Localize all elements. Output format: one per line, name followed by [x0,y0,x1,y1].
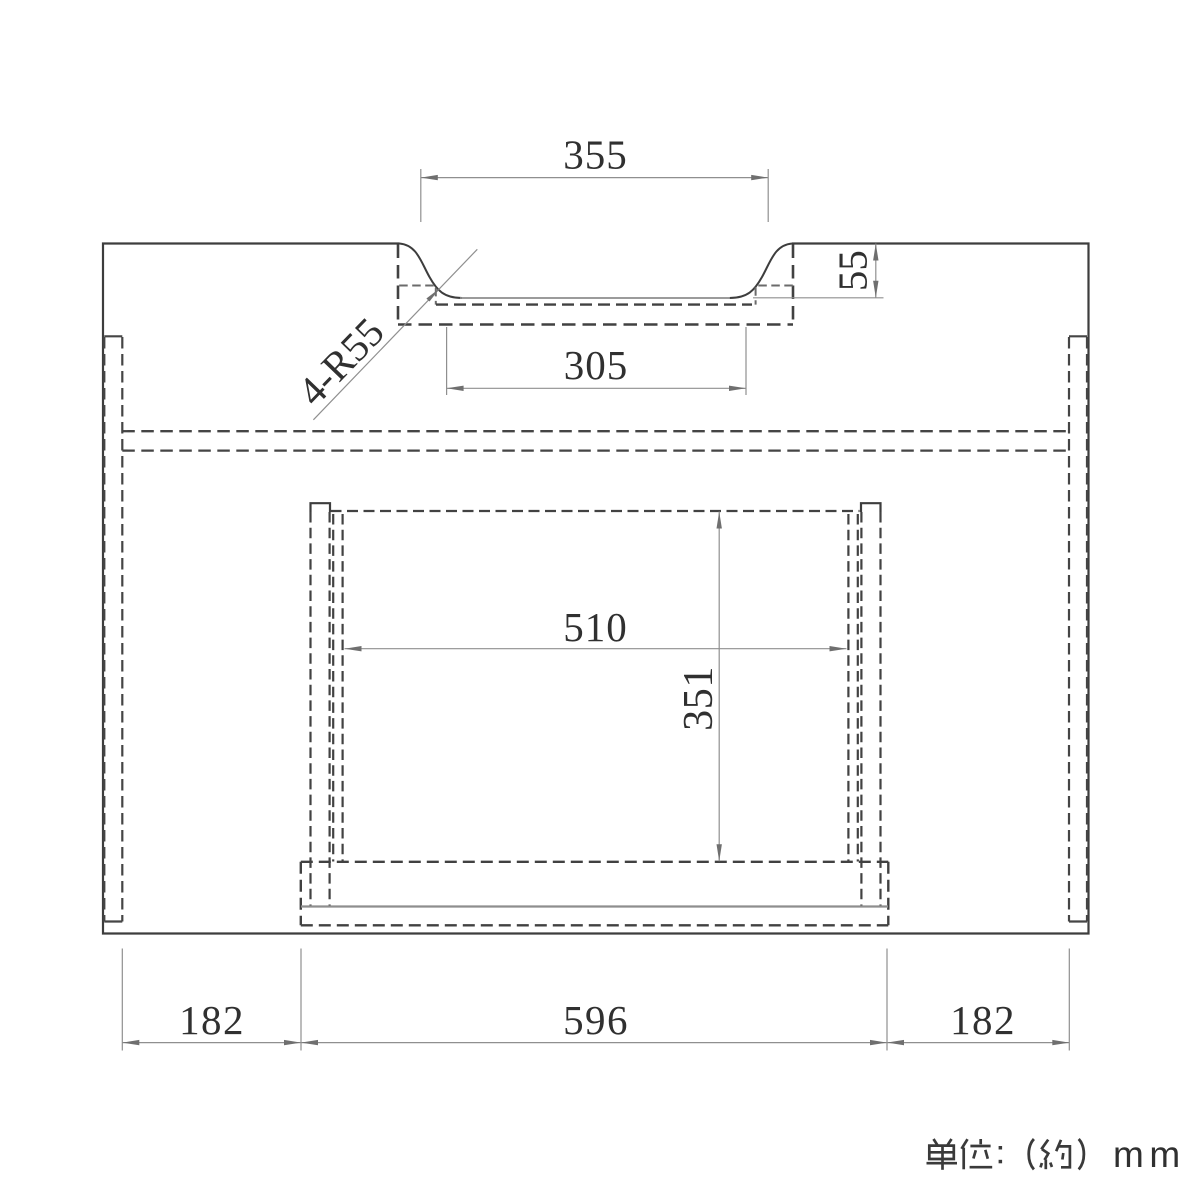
svg-text:355: 355 [563,132,628,178]
svg-text:182: 182 [950,997,1016,1043]
svg-text:596: 596 [563,997,629,1043]
svg-text:182: 182 [179,997,245,1043]
svg-text:4-R55: 4-R55 [288,309,392,415]
svg-text:mm: mm [1113,1134,1186,1175]
svg-text:510: 510 [563,604,628,650]
svg-text:351: 351 [676,666,722,731]
svg-text:55: 55 [830,250,876,291]
svg-text:305: 305 [564,342,629,388]
